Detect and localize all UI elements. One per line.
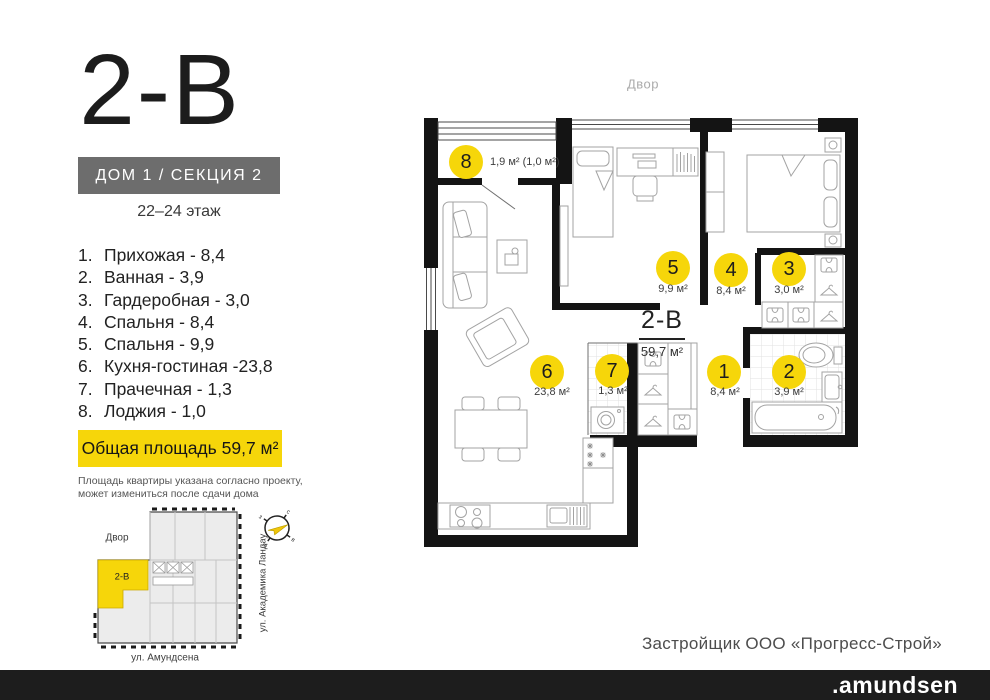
plan-unit-area: 59,7 м² bbox=[607, 344, 717, 359]
flat-brochure-page: 2-В ДОМ 1 / СЕКЦИЯ 2 22–24 этаж 1.Прихож… bbox=[0, 0, 990, 700]
room-list: 1.Прихожая - 8,4 2.Ванная - 3,9 3.Гардер… bbox=[78, 244, 328, 422]
fridge-icon bbox=[583, 438, 613, 503]
page-title: 2-В bbox=[60, 36, 260, 144]
room-marker-8: 8 bbox=[449, 145, 483, 179]
room-marker-7: 7 bbox=[595, 354, 629, 388]
site-yard-label: Двор bbox=[105, 533, 128, 544]
room-area-6: 23,8 м² bbox=[534, 386, 570, 398]
armchair-icon bbox=[464, 306, 530, 368]
room-list-item: 7.Прачечная - 1,3 bbox=[78, 378, 328, 400]
compass-west-letter: з bbox=[257, 514, 263, 521]
room-area-4: 8,4 м² bbox=[716, 285, 746, 297]
room-area-1: 8,4 м² bbox=[710, 386, 740, 398]
disclaimer: Площадь квартиры указана согласно проект… bbox=[78, 475, 308, 500]
room-marker-5: 5 bbox=[656, 251, 690, 285]
compass-icon: с ю з в bbox=[245, 498, 305, 561]
compass-east-letter: в bbox=[290, 537, 296, 544]
coffee-table-icon bbox=[497, 240, 527, 273]
kitchen-counter-icon bbox=[438, 503, 590, 529]
site-unit-label: 2-В bbox=[115, 572, 130, 583]
room-marker-3: 3 bbox=[772, 252, 806, 286]
bookshelf-icon bbox=[673, 148, 698, 176]
floors-label: 22–24 этаж bbox=[78, 203, 280, 221]
room-list-item: 4.Спальня - 8,4 bbox=[78, 311, 328, 333]
bathtub-icon bbox=[752, 402, 842, 433]
unit-label-divider bbox=[639, 338, 685, 340]
room-area-3: 3,0 м² bbox=[774, 284, 804, 296]
bathroom-sink-icon bbox=[822, 372, 842, 402]
room-list-item: 6.Кухня-гостиная -23,8 bbox=[78, 355, 328, 377]
room-area-2: 3,9 м² bbox=[774, 386, 804, 398]
dining-table-icon bbox=[455, 397, 527, 461]
plan-yard-label: Двор bbox=[627, 77, 659, 92]
room-list-item: 8.Лоджия - 1,0 bbox=[78, 400, 328, 422]
room-list-item: 3.Гардеробная - 3,0 bbox=[78, 289, 328, 311]
total-area-badge: Общая площадь 59,7 м² bbox=[78, 430, 282, 467]
footer-logo: .amundsen bbox=[832, 670, 958, 700]
room-list-item: 2.Ванная - 3,9 bbox=[78, 266, 328, 288]
room-area-7: 1,3 м² bbox=[598, 385, 628, 397]
street-label-right: ул. Академика Ландау bbox=[258, 534, 269, 633]
room-list-item: 1.Прихожая - 8,4 bbox=[78, 244, 328, 266]
sofa-icon bbox=[443, 202, 487, 308]
room-marker-6: 6 bbox=[530, 355, 564, 389]
street-label-bottom: ул. Амундсена bbox=[131, 653, 199, 664]
wardrobe-icon bbox=[706, 152, 724, 232]
single-bed-icon bbox=[573, 147, 613, 237]
room-area-5: 9,9 м² bbox=[658, 283, 688, 295]
plan-unit-label: 2-В 59,7 м² bbox=[607, 306, 717, 359]
room-list-item: 5.Спальня - 9,9 bbox=[78, 333, 328, 355]
washing-machine-icon bbox=[591, 407, 624, 433]
section-badge: ДОМ 1 / СЕКЦИЯ 2 bbox=[78, 157, 280, 194]
desk-icon bbox=[617, 148, 673, 201]
plan-unit-code: 2-В bbox=[607, 306, 717, 335]
floor-plan: Двор bbox=[420, 70, 868, 560]
room-area-8: 1,9 м² (1,0 м²) bbox=[490, 156, 560, 168]
room-marker-2: 2 bbox=[772, 355, 806, 389]
developer-label: Застройщик ООО «Прогресс-Строй» bbox=[642, 634, 942, 654]
tv-unit-icon bbox=[560, 206, 568, 286]
toilet-icon bbox=[799, 343, 842, 367]
room-marker-1: 1 bbox=[707, 355, 741, 389]
double-bed-icon bbox=[747, 155, 840, 232]
room-marker-4: 4 bbox=[714, 253, 748, 287]
